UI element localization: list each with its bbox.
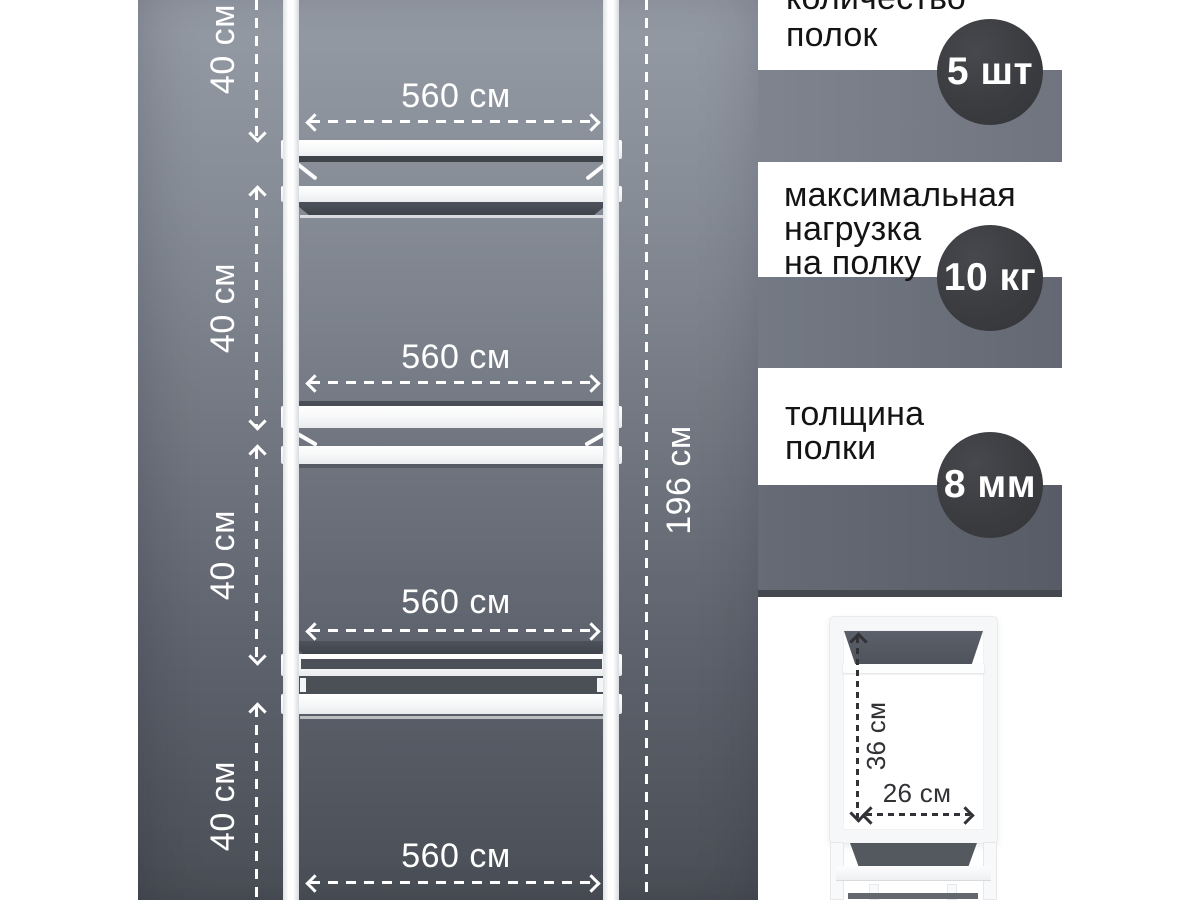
- shelf-crossbar: [281, 406, 622, 428]
- spec-label-3: толщина полки: [785, 397, 924, 465]
- spec-badge-3: 8 мм: [937, 432, 1043, 538]
- shelf-surface: [290, 641, 613, 654]
- spec-badge-1: 5 шт: [937, 19, 1043, 125]
- tier-height-label-3: 40 см: [203, 495, 243, 615]
- side-view-lower-rail: [836, 866, 991, 880]
- shelf-crossbar: [281, 446, 622, 464]
- shelf-edge-shadow: [295, 156, 608, 162]
- tier-height-arrow-2: [255, 190, 258, 426]
- shelf-width-arrow-3: [310, 629, 596, 632]
- side-view-width-arrow: [866, 813, 970, 816]
- shelf-crossbar: [281, 694, 622, 714]
- side-view-width-label: 26 см: [862, 779, 972, 807]
- shelf-crossbar: [281, 186, 622, 202]
- tier-height-label-1: 40 см: [203, 0, 243, 109]
- tier-height-label-4: 40 см: [203, 746, 243, 866]
- shelf-width-label-1: 560 см: [336, 74, 576, 118]
- spec-label-1: количество полок: [786, 0, 966, 54]
- total-height-label: 196 см: [659, 410, 699, 550]
- tier-height-arrow-1: [255, 0, 258, 138]
- shelf-width-arrow-1: [310, 120, 596, 123]
- spec-badge-value-3: 8 мм: [944, 463, 1036, 507]
- shelf-width-label-4: 560 см: [336, 834, 576, 878]
- shelf-width-label-3: 560 см: [336, 580, 576, 624]
- spec-badge-value-1: 5 шт: [947, 50, 1033, 94]
- shelf-back-rail: [300, 215, 603, 218]
- spec-badge-2: 10 кг: [937, 225, 1043, 331]
- shelf-post-left: [283, 0, 299, 900]
- shelf-surface-strip: [301, 659, 602, 669]
- total-height-line: [645, 0, 648, 900]
- side-view-front-rail: [843, 664, 984, 673]
- spec-badge-value-2: 10 кг: [944, 256, 1036, 300]
- shelf-width-label-2: 560 см: [336, 335, 576, 379]
- shelf-post-right: [603, 0, 619, 900]
- shelf-width-arrow-2: [310, 381, 596, 384]
- shelf-edge-shadow: [298, 464, 605, 468]
- side-view-lower-edge: [848, 893, 978, 899]
- side-view-depth-label: 36 см: [861, 681, 891, 791]
- shelf-surface: [293, 202, 610, 215]
- shelf-gap-shadow: [293, 676, 610, 694]
- tier-height-arrow-4: [255, 707, 258, 900]
- connector-post: [300, 678, 306, 692]
- side-view-depth-arrow: [856, 637, 859, 818]
- tier-height-label-2: 40 см: [203, 248, 243, 368]
- product-infographic: 40 см 40 см 40 см 40 см 560 см 560 см 56…: [0, 0, 1200, 900]
- shelf-width-arrow-4: [310, 881, 596, 884]
- tier-height-arrow-3: [255, 449, 258, 661]
- side-view-shelf-surface: [844, 631, 983, 668]
- shelf-back-rail: [300, 716, 603, 719]
